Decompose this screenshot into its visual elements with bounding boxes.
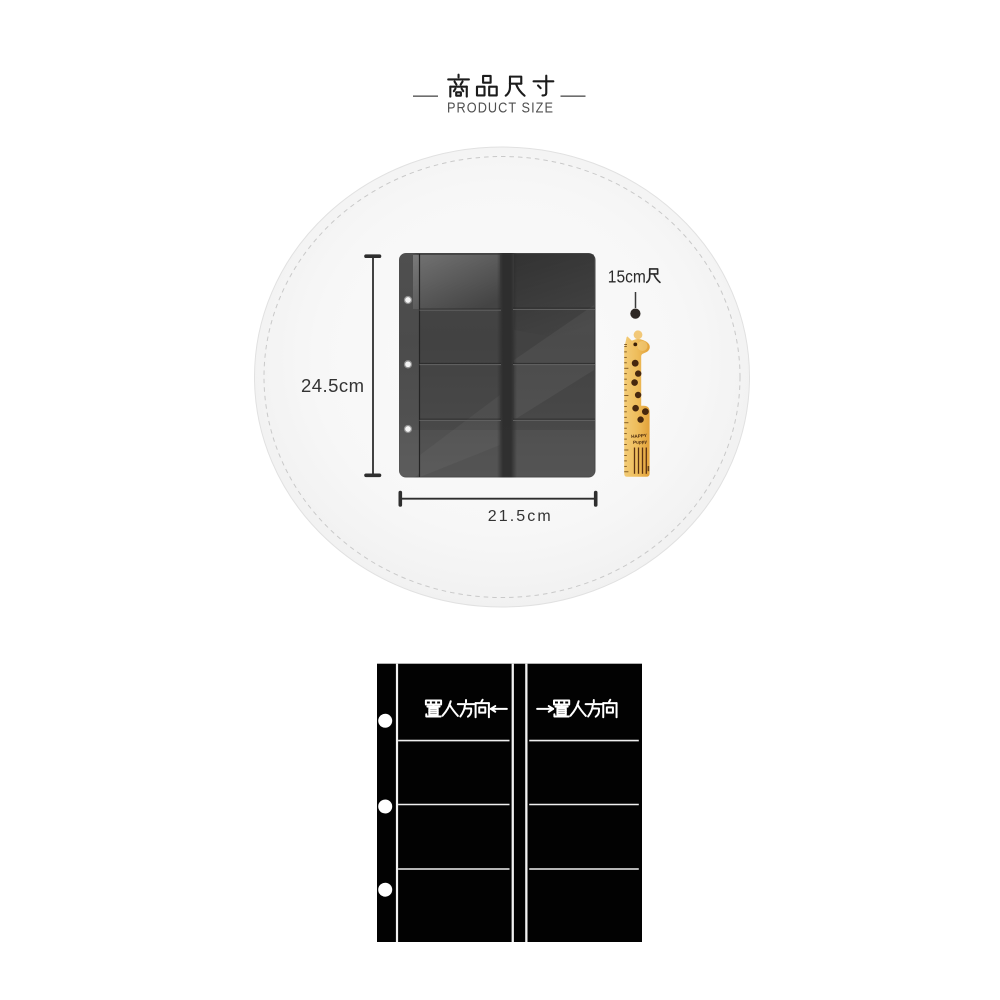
svg-text:15cm: 15cm xyxy=(608,266,646,286)
svg-text:PRODUCT SIZE: PRODUCT SIZE xyxy=(447,101,554,117)
svg-text:24.5cm: 24.5cm xyxy=(301,375,364,396)
svg-text:Puppy: Puppy xyxy=(633,439,648,445)
